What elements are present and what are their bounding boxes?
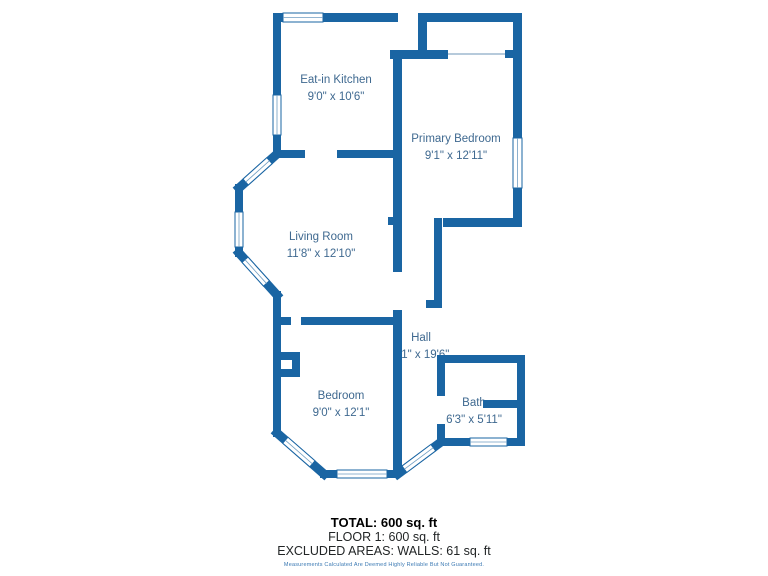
room-name: Hall — [393, 330, 450, 347]
disclaimer-text: Measurements Calculated Are Deemed Highl… — [0, 562, 768, 569]
room-name: Living Room — [287, 229, 356, 246]
room-labels: Eat-in Kitchen 9'0" x 10'6" Primary Bedr… — [0, 0, 768, 576]
room-name: Primary Bedroom — [411, 131, 500, 148]
room-label-living-room: Living Room 11'8" x 12'10" — [287, 229, 356, 263]
room-dims: 9'0" x 10'6" — [300, 89, 372, 106]
floor-area-text: FLOOR 1: 600 sq. ft — [0, 530, 768, 544]
room-dims: 6'3" x 5'11" — [446, 412, 502, 429]
room-label-bedroom: Bedroom 9'0" x 12'1" — [313, 388, 370, 422]
room-dims: 11'8" x 12'10" — [287, 246, 356, 263]
excluded-areas-text: EXCLUDED AREAS: WALLS: 61 sq. ft — [0, 544, 768, 558]
total-area-text: TOTAL: 600 sq. ft — [0, 516, 768, 530]
room-name: Bath — [446, 395, 502, 412]
room-name: Bedroom — [313, 388, 370, 405]
room-label-bath: Bath 6'3" x 5'11" — [446, 395, 502, 429]
room-label-eat-in-kitchen: Eat-in Kitchen 9'0" x 10'6" — [300, 72, 372, 106]
room-dims: 9'0" x 12'1" — [313, 405, 370, 422]
room-dims: 3'1" x 19'6" — [393, 347, 450, 364]
room-label-hall: Hall 3'1" x 19'6" — [393, 330, 450, 364]
floor-summary: TOTAL: 600 sq. ft FLOOR 1: 600 sq. ft EX… — [0, 516, 768, 569]
floor-plan-page: Eat-in Kitchen 9'0" x 10'6" Primary Bedr… — [0, 0, 768, 576]
room-label-primary-bedroom: Primary Bedroom 9'1" x 12'11" — [411, 131, 500, 165]
room-name: Eat-in Kitchen — [300, 72, 372, 89]
room-dims: 9'1" x 12'11" — [411, 148, 500, 165]
